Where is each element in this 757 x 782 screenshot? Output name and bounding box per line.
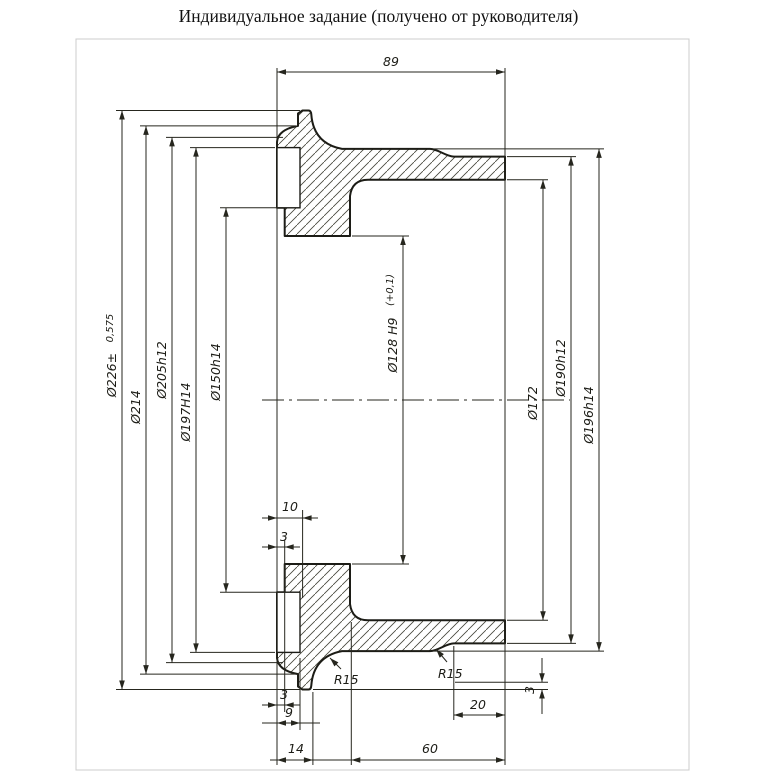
- dim-label-89: 89: [383, 54, 399, 69]
- page-title: Индивидуальное задание (получено от руко…: [0, 6, 757, 27]
- dim-label-3-recess: 3: [280, 529, 288, 544]
- dim-label-d226: Ø226±: [104, 353, 119, 398]
- dim-label-14: 14: [288, 741, 304, 756]
- dim-label-20: 20: [470, 697, 486, 712]
- drawing-page: Индивидуальное задание (получено от руко…: [0, 0, 757, 782]
- dim-label-60: 60: [422, 741, 438, 756]
- dim-label-9: 9: [285, 705, 293, 720]
- dim-label-d128: Ø128 H9: [385, 317, 400, 373]
- dim-label-d197: Ø197H14: [178, 382, 193, 442]
- dim-label-3-right: 3: [522, 686, 537, 694]
- dim-label-d190: Ø190h12: [553, 339, 568, 398]
- dim-label-10: 10: [282, 499, 298, 514]
- technical-drawing: Ø226± 0,575 Ø214 Ø205h12 Ø197H14 Ø150h14…: [0, 0, 757, 782]
- dim-label-d172: Ø172: [525, 386, 540, 421]
- dim-tol-d226: 0,575: [105, 314, 116, 343]
- flange-hole-zone-lower: [277, 592, 300, 652]
- dim-label-d196: Ø196h14: [581, 386, 596, 445]
- section-lower-half: [277, 564, 505, 690]
- dim-label-d214: Ø214: [128, 390, 143, 425]
- radius-label-r15-right: R15: [438, 666, 463, 681]
- flange-hole-zone-upper: [277, 148, 300, 208]
- section-upper-half: [277, 111, 505, 237]
- dim-label-3-bottom: 3: [280, 687, 288, 702]
- dim-label-d150: Ø150h14: [208, 343, 223, 402]
- dim-label-d205: Ø205h12: [154, 341, 169, 400]
- radius-label-r15-left: R15: [334, 672, 359, 687]
- dim-tol-d128: (+0,1): [385, 274, 396, 306]
